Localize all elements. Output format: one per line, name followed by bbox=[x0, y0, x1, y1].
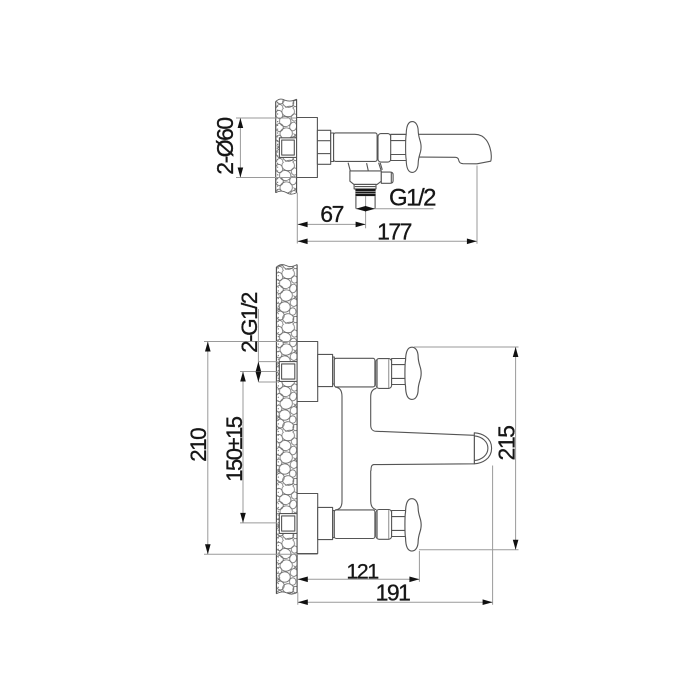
svg-text:121: 121 bbox=[346, 560, 378, 584]
svg-text:210: 210 bbox=[186, 428, 211, 462]
svg-text:2-G1/2: 2-G1/2 bbox=[237, 292, 262, 353]
svg-text:67: 67 bbox=[320, 201, 343, 227]
svg-text:177: 177 bbox=[377, 219, 412, 245]
svg-text:191: 191 bbox=[376, 580, 411, 606]
svg-text:215: 215 bbox=[494, 426, 520, 461]
svg-text:2-Ø60: 2-Ø60 bbox=[212, 118, 238, 175]
svg-text:150±15: 150±15 bbox=[222, 416, 247, 482]
svg-text:G1/2: G1/2 bbox=[389, 184, 436, 211]
